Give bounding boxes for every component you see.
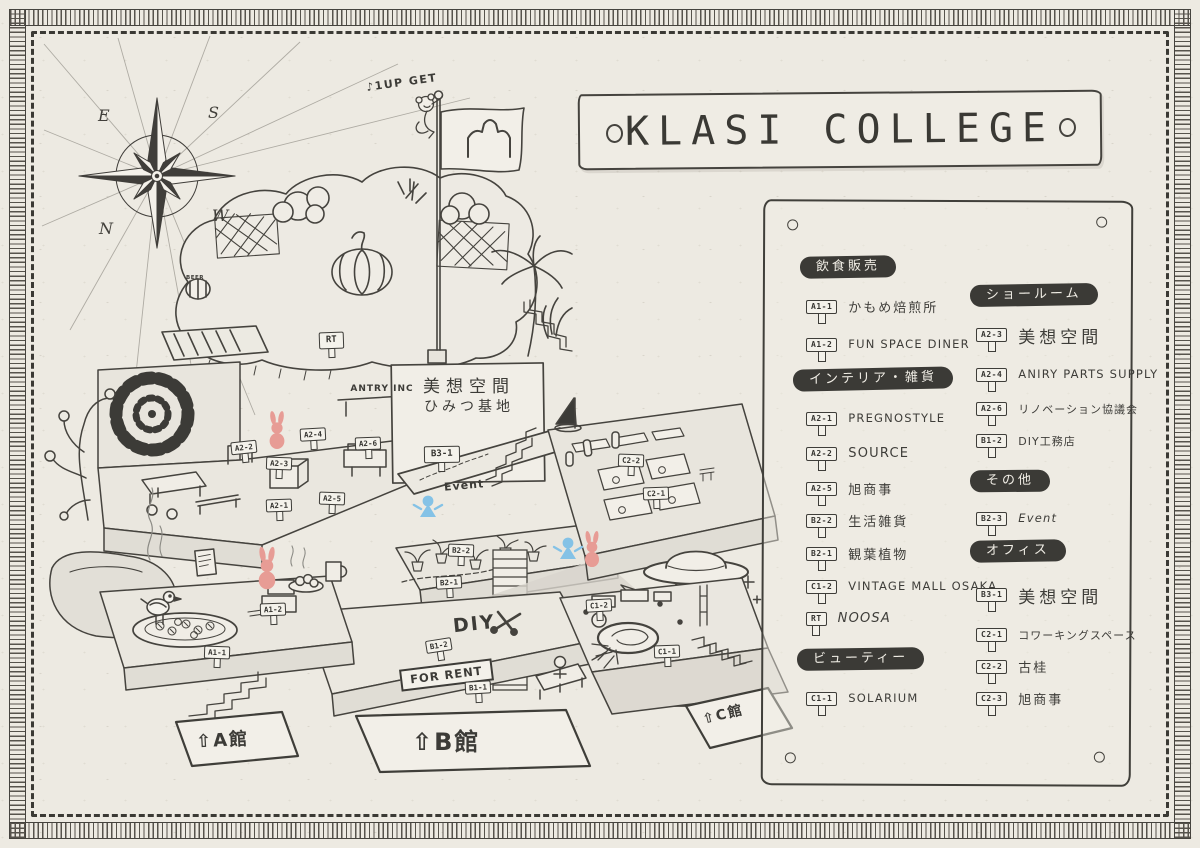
legend-sign: C2-2 bbox=[976, 654, 1007, 684]
legend-sign-code: A2-4 bbox=[976, 368, 1007, 382]
map-sign-post bbox=[275, 469, 282, 479]
map-sign-b2-2: B2-2 bbox=[448, 538, 475, 567]
legend-item-asahi-shoji: A2-5 旭商事 bbox=[806, 476, 893, 506]
legend-sign: C2-1 bbox=[976, 622, 1007, 652]
map-sign-a2-5: A2-5 bbox=[319, 486, 346, 515]
legend-sign-post bbox=[988, 447, 996, 458]
legend-sign: A2-5 bbox=[806, 476, 837, 506]
legend-sign-code: C2-2 bbox=[976, 660, 1007, 674]
map-sign-code: C1-1 bbox=[654, 645, 681, 659]
banner-rivet-right bbox=[1059, 118, 1076, 137]
legend-item-coworking-space: C2-1 コワーキングスペース bbox=[976, 622, 1137, 652]
legend-sign: A2-1 bbox=[806, 406, 837, 436]
map-sign-a2-6: A2-6 bbox=[355, 431, 382, 460]
legend-sign: B2-2 bbox=[806, 508, 837, 538]
legend-sign: A2-4 bbox=[976, 362, 1007, 392]
legend-sign-code: A2-6 bbox=[976, 402, 1007, 416]
legend-sign: A1-2 bbox=[806, 332, 837, 362]
legend-header-office: オフィス bbox=[970, 539, 1066, 563]
legend-item-aniry-parts-supply: A2-4 ANIRY PARTS SUPPLY bbox=[976, 362, 1158, 392]
map-sign-code: A2-6 bbox=[355, 437, 382, 451]
legend-sign-post bbox=[818, 460, 826, 471]
legend-sign: A1-1 bbox=[806, 294, 837, 324]
legend-sign-code: A1-1 bbox=[806, 300, 837, 314]
title-banner: KLASI COLLEGE bbox=[578, 90, 1103, 171]
map-sign-post bbox=[328, 504, 335, 514]
legend-sign: A2-3 bbox=[976, 322, 1007, 352]
legend-item-label: PREGNOSTYLE bbox=[848, 406, 945, 425]
map-sign-code: A2-1 bbox=[266, 499, 293, 513]
secret-base-board-line1: 美想空間 bbox=[396, 372, 542, 397]
legend-sign-code: C1-1 bbox=[806, 692, 837, 706]
map-sign-post bbox=[596, 611, 604, 621]
legend-item-label: 生活雑貨 bbox=[848, 508, 908, 530]
legend-sign-post bbox=[818, 351, 826, 362]
map-sign-post bbox=[475, 693, 483, 703]
map-sign-post bbox=[328, 348, 335, 358]
map-sign-b3-1: B3-1 bbox=[424, 441, 460, 472]
legend-item-label: VINTAGE MALL OSAKA bbox=[848, 574, 997, 593]
map-sign-rt: RT bbox=[318, 327, 344, 359]
legend-sign-post bbox=[818, 495, 826, 506]
map-sign-c2-1: C2-1 bbox=[643, 481, 670, 510]
legend-sign-post bbox=[818, 313, 826, 324]
map-sign-a2-3: A2-3 bbox=[266, 451, 293, 480]
diy-label: DIY bbox=[452, 611, 497, 637]
map-sign-a1-2: A1-2 bbox=[260, 597, 287, 626]
legend-item-vintage-mall-osaka: C1-2 VINTAGE MALL OSAKA bbox=[806, 574, 997, 604]
legend-header-other: その他 bbox=[970, 470, 1050, 493]
map-sign-a2-1: A2-1 bbox=[266, 493, 293, 522]
map-sign-code: B1-2 bbox=[425, 637, 453, 654]
map-sign-b2-1: B2-1 bbox=[435, 569, 462, 598]
legend-item-label: 美想空間 bbox=[1018, 582, 1102, 608]
map-sign-code: B2-2 bbox=[448, 544, 475, 558]
map-sign-code: A2-4 bbox=[300, 427, 327, 441]
secret-base-board-line2: ひみつ基地 bbox=[396, 396, 542, 416]
map-sign-post bbox=[446, 588, 454, 598]
legend-sign-post bbox=[988, 641, 996, 652]
legend-header-food: 飲食販売 bbox=[800, 255, 896, 279]
legend-item-pregnostyle: A2-1 PREGNOSTYLE bbox=[806, 406, 945, 436]
legend-item-label: 美想空間 bbox=[1018, 322, 1102, 348]
legend-sign-post bbox=[818, 705, 826, 716]
map-sign-code: A2-2 bbox=[230, 440, 257, 456]
legend-item-label: 旭商事 bbox=[848, 476, 893, 498]
legend-sign-post bbox=[988, 673, 996, 684]
map-sign-code: B2-1 bbox=[436, 575, 463, 589]
legend-sign: B2-3 bbox=[976, 506, 1007, 536]
map-sign-post bbox=[270, 615, 277, 625]
map-sign-code: B1-1 bbox=[465, 680, 492, 694]
legend-sign-post bbox=[988, 341, 996, 352]
compass-letter-s: S bbox=[208, 103, 219, 122]
map-sign-post bbox=[653, 499, 660, 509]
legend-sign-post bbox=[818, 527, 826, 538]
legend-item-bisoukukan-showroom: A2-3 美想空間 bbox=[976, 322, 1102, 352]
legend-item-label: 古桂 bbox=[1018, 654, 1048, 676]
map-sign-c1-2: C1-2 bbox=[585, 592, 612, 621]
map-sign-a2-2: A2-2 bbox=[230, 434, 259, 465]
legend-screw bbox=[1096, 217, 1107, 228]
legend-sign-post bbox=[988, 381, 996, 392]
legend-sign: RT bbox=[806, 606, 827, 636]
map-sign-post bbox=[627, 466, 634, 476]
map-sign-post bbox=[276, 511, 283, 521]
compass-letter-n: N bbox=[99, 219, 113, 238]
legend-item-label: 観葉植物 bbox=[848, 541, 908, 563]
legend-sign-code: C1-2 bbox=[806, 580, 837, 594]
compass-letter-e: E bbox=[98, 106, 110, 125]
compass-letter-w: W bbox=[212, 206, 228, 225]
legend-item-source: A2-2 SOURCE bbox=[806, 441, 909, 471]
map-sign-post bbox=[310, 440, 318, 450]
legend-sign-post bbox=[818, 593, 826, 604]
legend-item-label: かもめ焙煎所 bbox=[848, 294, 938, 316]
legend-screw bbox=[1094, 752, 1105, 763]
legend-sign-code: B2-3 bbox=[976, 512, 1007, 526]
map-sign-code: RT bbox=[319, 332, 344, 350]
legend-item-asahi-shoji-office: C2-3 旭商事 bbox=[976, 686, 1063, 716]
legend-item-label: Event bbox=[1018, 506, 1057, 525]
map-sign-code: C1-2 bbox=[586, 598, 613, 612]
map-sign-code: A2-3 bbox=[266, 457, 293, 471]
legend-sign-code: C2-1 bbox=[976, 628, 1007, 642]
legend-sign-post bbox=[988, 601, 996, 612]
beer-keg-label: BEER bbox=[186, 275, 204, 281]
legend-item-fun-space-diner: A1-2 FUN SPACE DINER bbox=[806, 332, 970, 362]
legend-sign-post bbox=[812, 625, 820, 636]
building-b-arrow-label: ⇧B館 bbox=[412, 722, 480, 757]
legend-item-label: SOURCE bbox=[848, 441, 909, 461]
legend-header-showroom: ショールーム bbox=[970, 283, 1098, 307]
legend-sign-code: B2-2 bbox=[806, 514, 837, 528]
legend-screw bbox=[787, 219, 798, 230]
legend-sign-code: B3-1 bbox=[976, 588, 1007, 602]
building-a-arrow-label: ⇧A館 bbox=[195, 725, 249, 754]
legend-sign: C1-2 bbox=[806, 574, 837, 604]
legend-item-event: B2-3 Event bbox=[976, 506, 1057, 536]
map-sign-b1-2: B1-2 bbox=[424, 631, 454, 663]
legend-item-label: ANIRY PARTS SUPPLY bbox=[1018, 362, 1158, 381]
legend-item-seikatsu-zakka: B2-2 生活雑貨 bbox=[806, 508, 908, 538]
map-sign-a1-1: A1-1 bbox=[204, 640, 231, 669]
legend-sign-post bbox=[988, 525, 996, 536]
legend-item-label: 旭商事 bbox=[1018, 686, 1063, 708]
map-sign-c2-2: C2-2 bbox=[618, 448, 645, 477]
legend-sign-code: B2-1 bbox=[806, 547, 837, 561]
map-sign-post bbox=[213, 658, 220, 668]
map-sign-code: B3-1 bbox=[424, 446, 460, 463]
legend-sign-code: A2-1 bbox=[806, 412, 837, 426]
map-sign-code: C2-1 bbox=[643, 487, 670, 501]
legend-sign-post bbox=[988, 415, 996, 426]
legend-item-renovation-kyogikai: A2-6 リノベーション協議会 bbox=[976, 396, 1138, 426]
legend-item-label: FUN SPACE DINER bbox=[848, 332, 970, 351]
legend-item-kokei: C2-2 古桂 bbox=[976, 654, 1048, 684]
legend-sign-code: A2-5 bbox=[806, 482, 837, 496]
legend-sign: B3-1 bbox=[976, 582, 1007, 612]
legend-sign-code: A2-3 bbox=[976, 328, 1007, 342]
page-title: KLASI COLLEGE bbox=[625, 105, 1055, 155]
legend-sign-post bbox=[818, 425, 826, 436]
legend-sign: B2-1 bbox=[806, 541, 837, 571]
map-sign-code: A2-5 bbox=[319, 492, 346, 506]
legend-sign-code: A1-2 bbox=[806, 338, 837, 352]
map-sign-post bbox=[664, 657, 671, 667]
legend-item-diy-komuten: B1-2 DIY工務店 bbox=[976, 428, 1076, 458]
legend-item-label: DIY工務店 bbox=[1018, 428, 1075, 449]
legend-sign: C1-1 bbox=[806, 686, 837, 716]
legend-sign-code: B1-2 bbox=[976, 434, 1007, 448]
legend-sign: A2-6 bbox=[976, 396, 1007, 426]
map-sign-code: A1-1 bbox=[204, 646, 231, 660]
map-sign-c1-1: C1-1 bbox=[654, 639, 681, 668]
legend-header-interior: インテリア・雑貨 bbox=[793, 366, 953, 391]
map-sign-post bbox=[457, 556, 464, 566]
legend-item-noosa: RT NOOSA bbox=[806, 606, 891, 636]
banner-rivet-left bbox=[606, 124, 623, 143]
map-sign-code: A1-2 bbox=[260, 603, 287, 617]
legend-sign-code: RT bbox=[806, 612, 827, 626]
legend-item-kanyo-shokubutsu: B2-1 観葉植物 bbox=[806, 541, 908, 571]
legend-item-label: NOOSA bbox=[838, 606, 891, 626]
legend-item-label: SOLARIUM bbox=[848, 686, 918, 705]
legend-item-label: リノベーション協議会 bbox=[1018, 396, 1138, 417]
map-sign-post bbox=[438, 462, 445, 472]
map-sign-a2-4: A2-4 bbox=[299, 421, 326, 450]
map-sign-post bbox=[365, 449, 372, 459]
legend-sign: A2-2 bbox=[806, 441, 837, 471]
legend-sign-code: A2-2 bbox=[806, 447, 837, 461]
legend-sign-post bbox=[988, 705, 996, 716]
legend-item-bisoukukan-office: B3-1 美想空間 bbox=[976, 582, 1102, 612]
klasi-college-map-poster: E S N W ♪1UP GET BEER ANTRY INC 美想空間 ひみつ… bbox=[0, 0, 1200, 848]
legend-item-kamome: A1-1 かもめ焙煎所 bbox=[806, 294, 938, 324]
legend-sign-post bbox=[818, 560, 826, 571]
legend-sign: C2-3 bbox=[976, 686, 1007, 716]
legend-screw bbox=[785, 752, 796, 763]
legend-sign-code: C2-3 bbox=[976, 692, 1007, 706]
legend-item-label: コワーキングスペース bbox=[1018, 622, 1136, 643]
legend-header-beauty: ビューティー bbox=[797, 647, 925, 671]
legend-sign: B1-2 bbox=[976, 428, 1007, 458]
map-sign-b1-1: B1-1 bbox=[464, 674, 491, 703]
map-sign-code: C2-2 bbox=[618, 454, 645, 468]
legend-item-solarium: C1-1 SOLARIUM bbox=[806, 686, 918, 716]
